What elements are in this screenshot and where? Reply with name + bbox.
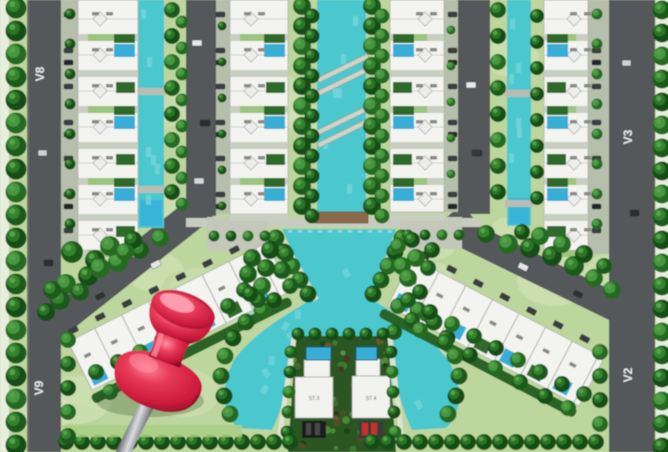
svg-text:ST 4: ST 4 bbox=[366, 396, 377, 402]
svg-text:V9: V9 bbox=[32, 380, 46, 395]
svg-text:V3: V3 bbox=[621, 129, 635, 144]
svg-text:ST 3: ST 3 bbox=[309, 396, 320, 402]
svg-text:V8: V8 bbox=[33, 66, 47, 81]
svg-text:V2: V2 bbox=[621, 367, 635, 382]
